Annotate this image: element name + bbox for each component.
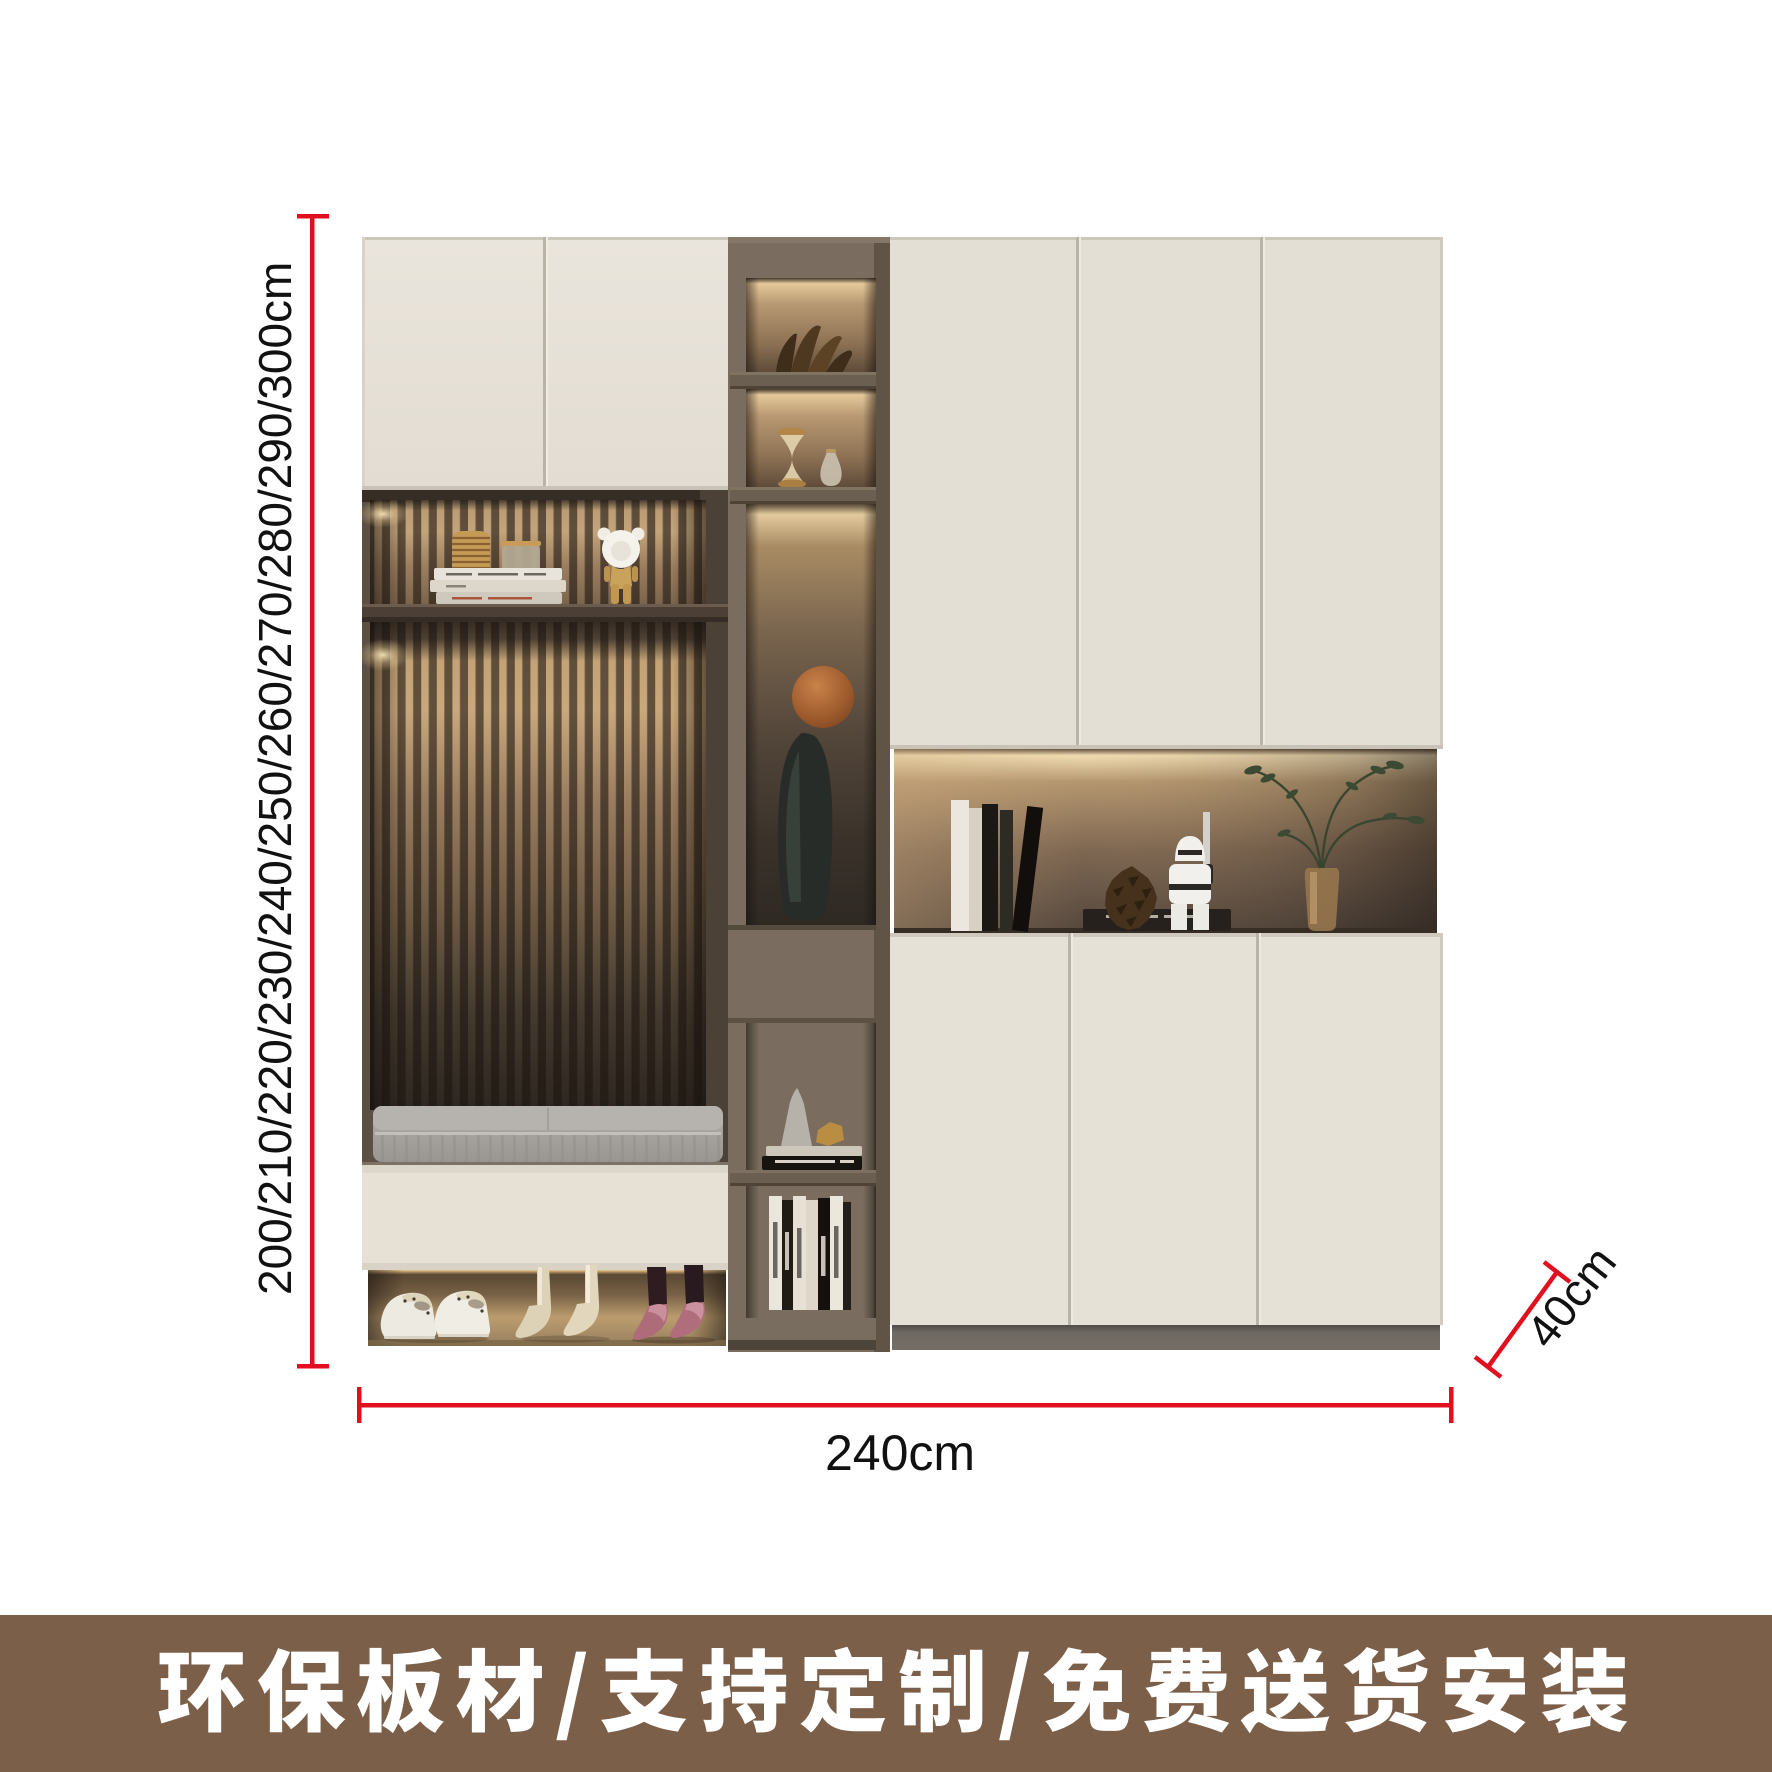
svg-text:240cm: 240cm (825, 1425, 975, 1481)
svg-text:40cm: 40cm (1516, 1237, 1626, 1358)
svg-text:200/210/220/230/240/250/260/27: 200/210/220/230/240/250/260/270/280/290/… (249, 262, 301, 1295)
